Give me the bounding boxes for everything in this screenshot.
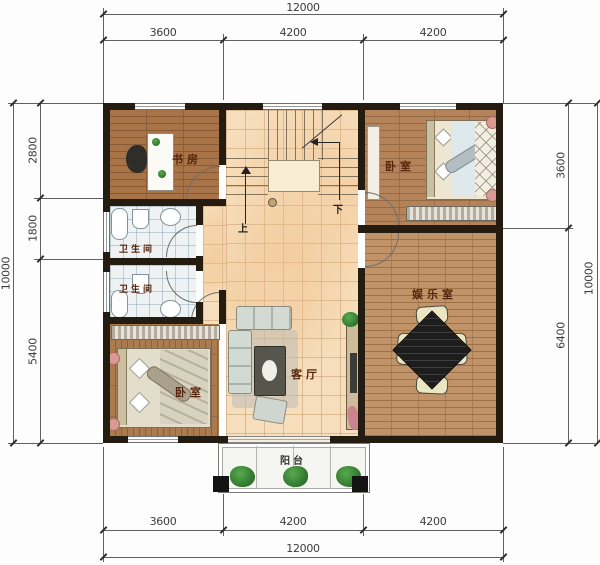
dim-label: 1800 <box>27 199 40 259</box>
sofa <box>228 330 252 394</box>
window-study-top <box>135 103 185 110</box>
dim-extension <box>223 34 224 100</box>
room-bedroom-bl-label: 卧室 <box>175 384 205 400</box>
wall-study-bottom <box>103 199 226 206</box>
coffee-table-tray <box>262 360 277 381</box>
bed-pillow <box>434 128 452 146</box>
dim-label: 12000 <box>273 1 333 14</box>
stairs-right-flight <box>318 158 358 198</box>
wall-right-split <box>358 225 503 233</box>
desk-plant <box>152 138 160 146</box>
stair-up-arrow <box>245 172 246 224</box>
stair-down-line <box>339 142 340 200</box>
dim-extension <box>103 447 104 562</box>
dim-extension <box>34 259 103 260</box>
bed-quilt <box>475 122 497 196</box>
dim-extension <box>503 443 595 444</box>
wall-center-right-a <box>358 103 365 190</box>
bed <box>426 120 500 200</box>
room-entertainment-label: 娱乐室 <box>412 286 457 302</box>
balcony-rail-divider <box>330 446 331 489</box>
balcony-rail-divider <box>256 446 257 489</box>
wall-study-right <box>219 103 226 165</box>
window-bedroom-tr-top <box>400 103 456 110</box>
wall-outer-right <box>496 103 503 443</box>
room-study-label: 书房 <box>172 151 202 167</box>
dim-label: 10000 <box>0 244 13 304</box>
dim-extension <box>103 8 104 103</box>
dim-extension <box>503 228 573 229</box>
dim-line-left-overall <box>13 103 14 443</box>
rug <box>406 206 500 221</box>
tv <box>350 353 357 393</box>
room-bathroom-2-label: 卫生间 <box>119 282 155 295</box>
dim-extension <box>34 198 103 199</box>
dim-line-bottom-overall <box>103 557 503 558</box>
dim-line-top-overall <box>103 14 503 15</box>
dim-label: 3600 <box>133 26 193 39</box>
dim-label: 10000 <box>583 249 596 309</box>
dim-extension <box>503 103 595 104</box>
dim-label: 4200 <box>263 26 323 39</box>
window-bedroom-bl-bottom <box>128 436 178 443</box>
dim-extension <box>8 443 103 444</box>
wall-bath-right-c <box>196 302 203 324</box>
dim-label: 6400 <box>555 306 568 366</box>
balcony-plant <box>230 466 255 487</box>
dim-line-right-segments <box>568 103 569 443</box>
stairs-left-flight <box>226 158 268 203</box>
dim-line-top-segments <box>103 40 503 41</box>
wall-bedroom-bl-stub <box>219 290 226 324</box>
window-bathroom-2-left <box>103 272 110 312</box>
stair-up-arrowhead <box>241 166 251 174</box>
balcony-post <box>213 476 229 492</box>
closet <box>367 126 380 200</box>
rug <box>111 325 220 340</box>
balcony-sliding-door <box>228 436 330 443</box>
room-balcony-label: 阳台 <box>280 452 306 467</box>
dim-extension <box>503 447 504 562</box>
stair-down-line-h <box>316 142 340 143</box>
room-bathroom-1-label: 卫生间 <box>119 242 155 255</box>
floor-plan: 上 下 <box>0 0 600 565</box>
wall-bath-right-a <box>196 206 203 225</box>
stair-rail-end <box>268 198 277 207</box>
wall-bedroom-bl-top <box>103 317 196 324</box>
stairs-upper-flight <box>268 110 330 160</box>
stair-up-label: 上 <box>238 220 248 235</box>
sink <box>160 208 181 226</box>
room-living-label: 客厅 <box>291 366 321 382</box>
sofa <box>236 306 292 330</box>
dim-extension <box>8 103 103 104</box>
wall-center-right-c <box>358 268 365 436</box>
desk-plant <box>158 170 166 178</box>
dim-line-right-overall <box>597 103 598 443</box>
dim-label: 4200 <box>403 515 463 528</box>
window-stair-top <box>263 103 322 110</box>
sink <box>160 300 181 318</box>
dim-label: 3600 <box>555 136 568 196</box>
window-bathroom-1-left <box>103 212 110 252</box>
dim-extension <box>363 34 364 100</box>
balcony-post <box>352 476 368 492</box>
plant <box>342 312 359 327</box>
dim-line-bottom-segments <box>103 530 503 531</box>
bed-headboard <box>427 121 435 197</box>
dim-label: 5400 <box>27 322 40 382</box>
bathtub <box>111 208 128 240</box>
balcony-plant <box>283 466 308 487</box>
office-chair <box>126 145 147 173</box>
room-bedroom-tr-label: 卧室 <box>385 158 415 174</box>
stairs-landing <box>268 160 320 192</box>
bed-pillow <box>129 392 150 413</box>
stair-down-arrowhead <box>310 138 318 146</box>
coffee-table <box>254 346 286 396</box>
dim-label: 4200 <box>403 26 463 39</box>
dim-label: 12000 <box>273 542 333 555</box>
toilet <box>132 209 149 229</box>
dim-label: 3600 <box>133 515 193 528</box>
wall-bath-divider <box>103 258 203 265</box>
stair-down-label: 下 <box>333 201 343 216</box>
dim-extension <box>503 8 504 103</box>
dim-label: 2800 <box>27 121 40 181</box>
dim-label: 4200 <box>263 515 323 528</box>
dim-line-left-segments <box>40 103 41 443</box>
